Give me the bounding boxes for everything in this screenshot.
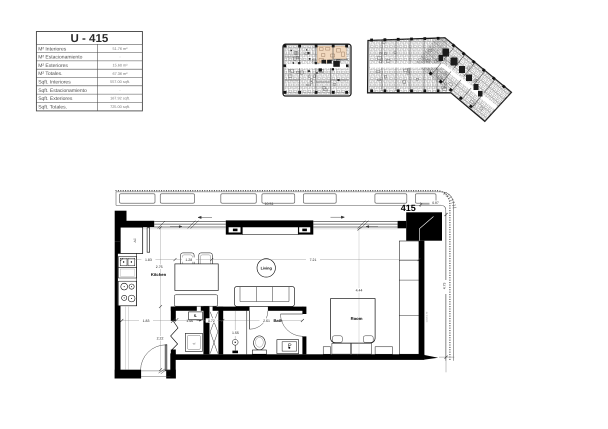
- svg-text:Sqft. Estacionamiento: Sqft. Estacionamiento: [38, 88, 87, 94]
- svg-text:S.: S.: [194, 314, 197, 318]
- svg-text:557.00 sqft.: 557.00 sqft.: [110, 80, 130, 84]
- svg-text:closet 2.70: closet 2.70: [426, 311, 429, 322]
- svg-text:Sqft. Exteriores: Sqft. Exteriores: [38, 96, 73, 102]
- svg-text:M² Interiores: M² Interiores: [38, 46, 67, 52]
- svg-text:4.73: 4.73: [443, 282, 447, 289]
- svg-text:Living: Living: [261, 266, 273, 270]
- svg-text:725.00 sqft.: 725.00 sqft.: [110, 105, 130, 109]
- svg-text:Sqft. Totales.: Sqft. Totales.: [38, 104, 67, 110]
- svg-text:1.83: 1.83: [145, 258, 152, 262]
- svg-text:167.92 sqft.: 167.92 sqft.: [110, 97, 130, 101]
- svg-text:15.60 m²: 15.60 m²: [113, 64, 129, 68]
- svg-text:1.06: 1.06: [186, 319, 193, 323]
- svg-text:M² Estacionamiento: M² Estacionamiento: [38, 55, 82, 61]
- svg-text:0.87: 0.87: [432, 201, 439, 205]
- svg-text:M² Totales.: M² Totales.: [38, 71, 62, 77]
- svg-text:4.44: 4.44: [356, 289, 363, 293]
- svg-text:M² Exteriores: M² Exteriores: [38, 63, 68, 69]
- svg-text:Sqft. Interiores: Sqft. Interiores: [38, 80, 71, 86]
- svg-text:10.51: 10.51: [265, 202, 274, 206]
- svg-text:AC: AC: [133, 237, 137, 242]
- svg-text:Room: Room: [351, 316, 363, 321]
- svg-text:415: 415: [401, 203, 416, 213]
- svg-text:U - 415: U - 415: [71, 33, 109, 45]
- svg-text:0.72: 0.72: [208, 319, 215, 323]
- svg-text:2.75: 2.75: [156, 265, 163, 269]
- svg-text:Bath: Bath: [274, 318, 283, 323]
- svg-text:51.76 m²: 51.76 m²: [113, 47, 129, 51]
- svg-text:1.55: 1.55: [232, 331, 239, 335]
- svg-text:67.36 m²: 67.36 m²: [113, 72, 129, 76]
- svg-text:2.61: 2.61: [263, 319, 270, 323]
- svg-text:Kitchen: Kitchen: [151, 272, 167, 277]
- svg-text:wf: wf: [193, 342, 196, 345]
- svg-text:2.22: 2.22: [157, 337, 164, 341]
- svg-text:1.83: 1.83: [143, 319, 150, 323]
- svg-text:1.28: 1.28: [185, 258, 192, 262]
- svg-text:7.21: 7.21: [310, 258, 317, 262]
